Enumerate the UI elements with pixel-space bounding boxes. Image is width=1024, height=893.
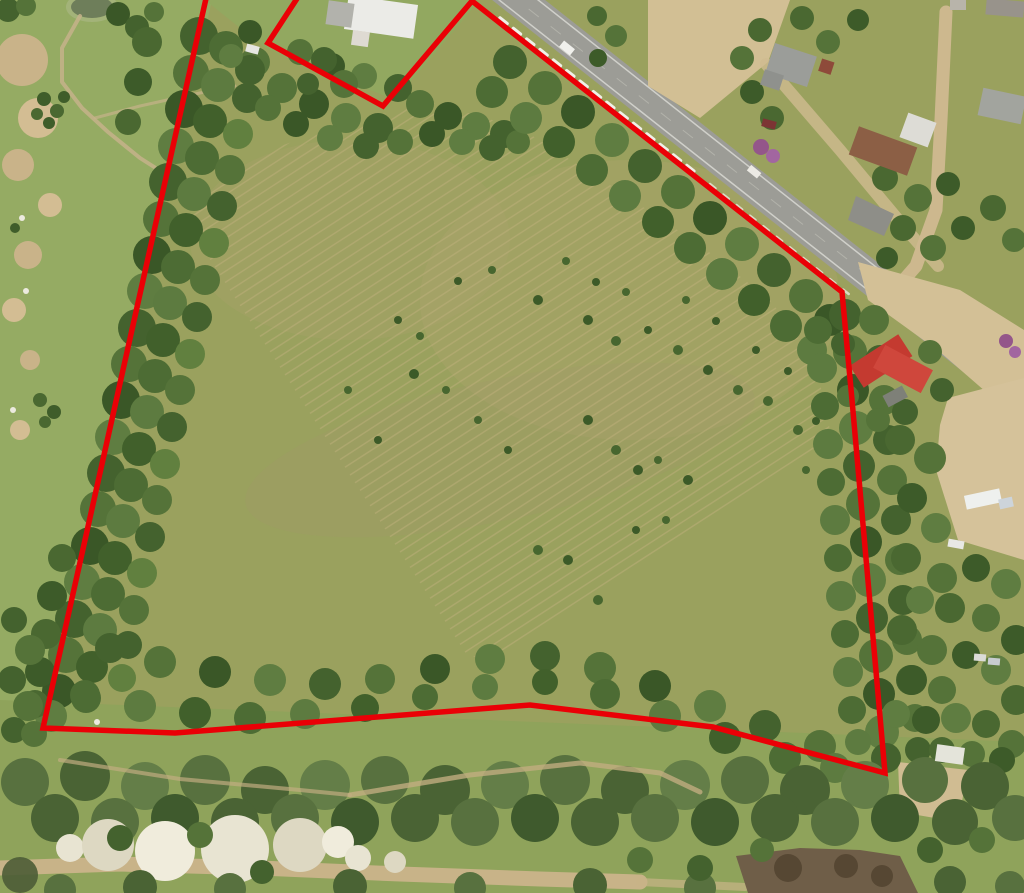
tree-blob xyxy=(633,465,643,475)
tree-blob xyxy=(37,92,51,106)
tree-blob xyxy=(94,719,100,725)
tree-blob xyxy=(753,139,769,155)
house-notch-wing xyxy=(325,0,354,27)
tree-blob xyxy=(576,154,608,186)
tree-blob xyxy=(345,845,371,871)
tree-blob xyxy=(15,635,45,665)
tree-blob xyxy=(182,302,212,332)
tree-blob xyxy=(649,700,681,732)
car-bottom-right-2 xyxy=(988,657,1001,665)
tree-blob xyxy=(161,250,195,284)
tree-blob xyxy=(119,595,149,625)
tree-blob xyxy=(817,468,845,496)
tree-blob xyxy=(479,135,505,161)
tree-blob xyxy=(56,834,84,862)
tree-blob xyxy=(906,586,934,614)
tree-blob xyxy=(449,129,475,155)
tree-blob xyxy=(859,305,889,335)
tree-blob xyxy=(721,756,769,804)
tree-blob xyxy=(106,504,140,538)
aerial-property-map xyxy=(0,0,1024,893)
tree-blob xyxy=(661,175,695,209)
tree-blob xyxy=(135,522,165,552)
tree-blob xyxy=(543,126,575,158)
tree-blob xyxy=(207,191,237,221)
tree-blob xyxy=(215,155,245,185)
tree-blob xyxy=(406,90,434,118)
tree-blob xyxy=(589,49,607,67)
tree-blob xyxy=(644,326,652,334)
tree-blob xyxy=(811,392,839,420)
tree-blob xyxy=(562,257,570,265)
tree-blob xyxy=(98,541,132,575)
tree-blob xyxy=(622,288,630,296)
tree-blob xyxy=(882,700,910,728)
tree-blob xyxy=(361,756,409,804)
tree-blob xyxy=(199,656,231,688)
tree-blob xyxy=(980,195,1006,221)
tree-blob xyxy=(920,235,946,261)
tree-blob xyxy=(917,837,943,863)
tree-blob xyxy=(144,2,164,22)
tree-blob xyxy=(475,644,505,674)
tree-blob xyxy=(912,706,940,734)
tree-blob xyxy=(914,442,946,474)
tree-blob xyxy=(631,794,679,842)
tree-blob xyxy=(150,449,180,479)
tree-blob xyxy=(177,177,211,211)
tree-blob xyxy=(813,429,843,459)
tree-blob xyxy=(1,607,27,633)
tree-blob xyxy=(750,838,774,862)
tree-blob xyxy=(10,407,16,413)
tree-blob xyxy=(23,288,29,294)
tree-blob xyxy=(43,117,55,129)
tree-blob xyxy=(391,794,439,842)
tree-blob xyxy=(187,822,213,848)
tree-blob xyxy=(763,396,773,406)
tree-blob xyxy=(802,466,810,474)
tree-blob xyxy=(999,334,1013,348)
tree-blob xyxy=(193,104,227,138)
tree-blob xyxy=(33,393,47,407)
tree-blob xyxy=(223,119,253,149)
tree-blob xyxy=(897,665,927,695)
tree-blob xyxy=(142,485,172,515)
tree-blob xyxy=(674,232,706,264)
tree-blob xyxy=(165,375,195,405)
tree-blob xyxy=(532,669,558,695)
tree-blob xyxy=(561,95,595,129)
tree-blob xyxy=(127,558,157,588)
tree-blob xyxy=(921,513,951,543)
tree-blob xyxy=(493,45,527,79)
tree-blob xyxy=(820,505,850,535)
tree-blob xyxy=(748,18,772,42)
tree-blob xyxy=(683,475,693,485)
tree-blob xyxy=(628,149,662,183)
tree-blob xyxy=(930,378,954,402)
tree-blob xyxy=(790,6,814,30)
tree-blob xyxy=(47,405,61,419)
tree-blob xyxy=(50,104,64,118)
tree-blob xyxy=(451,798,499,846)
tree-blob xyxy=(654,456,662,464)
tree-blob xyxy=(991,569,1021,599)
tree-blob xyxy=(488,266,496,274)
tree-blob xyxy=(563,555,573,565)
tree-blob xyxy=(1009,346,1021,358)
tree-blob xyxy=(115,109,141,135)
tree-blob xyxy=(941,703,971,733)
tree-blob xyxy=(789,279,823,313)
tree-blob xyxy=(793,425,803,435)
tree-blob xyxy=(185,141,219,175)
tree-blob xyxy=(951,216,975,240)
tree-blob xyxy=(153,286,187,320)
tree-blob xyxy=(972,710,1000,738)
tree-blob xyxy=(39,416,51,428)
tree-blob xyxy=(703,365,713,375)
tree-blob xyxy=(918,340,942,364)
tree-blob xyxy=(254,664,286,696)
tree-blob xyxy=(725,227,759,261)
tree-blob xyxy=(146,323,180,357)
tree-blob xyxy=(409,369,419,379)
tree-blob xyxy=(169,213,203,247)
tree-blob xyxy=(962,554,990,582)
tree-blob xyxy=(897,483,927,513)
tree-blob xyxy=(583,415,593,425)
tree-blob xyxy=(757,253,791,287)
tree-blob xyxy=(48,544,76,572)
tree-blob xyxy=(58,91,70,103)
tree-blob xyxy=(752,346,760,354)
tree-blob xyxy=(890,215,916,241)
tree-blob xyxy=(583,315,593,325)
car-bottom-right-1 xyxy=(974,653,987,661)
tree-blob xyxy=(632,526,640,534)
tree-blob xyxy=(673,345,683,355)
tree-blob xyxy=(824,544,852,572)
tree-blob xyxy=(927,563,957,593)
tree-blob xyxy=(885,425,915,455)
tree-blob xyxy=(833,657,863,687)
aerial-photo-canvas xyxy=(0,0,1024,893)
tree-blob xyxy=(2,298,26,322)
tree-blob xyxy=(528,71,562,105)
tree-blob xyxy=(784,367,792,375)
tree-blob xyxy=(837,385,859,407)
tree-blob xyxy=(847,9,869,31)
tree-blob xyxy=(891,543,921,573)
tree-blob xyxy=(693,201,727,235)
tree-blob xyxy=(13,691,43,721)
tree-blob xyxy=(384,851,406,873)
tree-blob xyxy=(804,316,832,344)
tree-blob xyxy=(190,265,220,295)
tree-blob xyxy=(593,595,603,605)
dark-shadow-bottom-left xyxy=(2,857,38,893)
tree-blob xyxy=(733,385,743,395)
tree-blob xyxy=(374,436,382,444)
tree-blob xyxy=(353,133,379,159)
tree-blob xyxy=(2,149,34,181)
tree-blob xyxy=(611,445,621,455)
tree-blob xyxy=(201,68,235,102)
tree-blob xyxy=(394,316,402,324)
tree-blob xyxy=(250,860,274,884)
tree-blob xyxy=(533,545,543,555)
tree-blob xyxy=(179,697,211,729)
tree-blob xyxy=(609,180,641,212)
tree-blob xyxy=(770,310,802,342)
tree-blob xyxy=(682,296,690,304)
tree-blob xyxy=(38,193,62,217)
tree-blob xyxy=(124,690,156,722)
tree-blob xyxy=(107,825,133,851)
tree-blob xyxy=(928,676,956,704)
tree-blob xyxy=(595,123,629,157)
tree-blob xyxy=(751,794,799,842)
tree-blob xyxy=(571,798,619,846)
tree-blob xyxy=(19,215,25,221)
tree-blob xyxy=(816,30,840,54)
tree-blob xyxy=(10,223,20,233)
tree-blob xyxy=(871,794,919,842)
tree-blob xyxy=(687,855,713,881)
tree-blob xyxy=(533,295,543,305)
tree-blob xyxy=(412,684,438,710)
tree-blob xyxy=(587,6,607,26)
tree-blob xyxy=(504,446,512,454)
tree-blob xyxy=(845,729,871,755)
tree-blob xyxy=(662,516,670,524)
tree-blob xyxy=(175,339,205,369)
tree-blob xyxy=(20,350,40,370)
tree-blob xyxy=(811,798,859,846)
tree-blob xyxy=(831,332,855,356)
tree-blob xyxy=(474,416,482,424)
tree-blob xyxy=(807,353,837,383)
tree-blob xyxy=(157,412,187,442)
tree-blob xyxy=(871,865,893,887)
tree-blob xyxy=(31,108,43,120)
tree-blob xyxy=(936,172,960,196)
tree-blob xyxy=(774,854,802,882)
tree-blob xyxy=(416,332,424,340)
tree-blob xyxy=(611,336,621,346)
tree-blob xyxy=(238,20,262,44)
tree-blob xyxy=(969,827,995,853)
tree-blob xyxy=(70,680,100,710)
tree-blob xyxy=(365,664,395,694)
tree-blob xyxy=(904,184,932,212)
tree-blob xyxy=(14,241,42,269)
tree-blob xyxy=(419,121,445,147)
tree-blob xyxy=(972,604,1000,632)
tree-blob xyxy=(730,46,754,70)
tree-blob xyxy=(887,615,917,645)
tree-blob xyxy=(876,247,898,269)
tree-blob xyxy=(838,696,866,724)
tree-blob xyxy=(866,408,890,432)
tree-blob xyxy=(442,386,450,394)
tree-blob xyxy=(511,794,559,842)
tree-blob xyxy=(309,668,341,700)
tree-blob xyxy=(273,818,327,872)
tree-blob xyxy=(317,125,343,151)
tree-blob xyxy=(108,664,136,692)
tree-blob xyxy=(60,751,110,801)
tree-blob xyxy=(766,149,780,163)
tree-blob xyxy=(831,620,859,648)
structure-top-right-2 xyxy=(950,0,966,10)
tree-blob xyxy=(255,95,281,121)
tree-blob xyxy=(37,581,67,611)
tree-blob xyxy=(712,317,720,325)
tree-blob xyxy=(472,674,498,700)
tree-blob xyxy=(627,847,653,873)
tree-blob xyxy=(454,277,462,285)
tree-blob xyxy=(584,652,616,684)
tree-blob xyxy=(144,646,176,678)
tree-blob xyxy=(420,654,450,684)
tree-blob xyxy=(694,690,726,722)
tree-blob xyxy=(297,73,319,95)
tree-blob xyxy=(826,581,856,611)
tree-blob xyxy=(917,635,947,665)
tree-blob xyxy=(691,798,739,846)
tree-blob xyxy=(283,111,309,137)
tree-blob xyxy=(10,420,30,440)
tree-blob xyxy=(706,258,738,290)
tree-blob xyxy=(344,386,352,394)
tree-blob xyxy=(738,284,770,316)
tree-blob xyxy=(605,25,627,47)
tree-blob xyxy=(387,129,413,155)
tree-blob xyxy=(132,27,162,57)
tree-blob xyxy=(642,206,674,238)
tree-blob xyxy=(834,854,858,878)
shed-notch xyxy=(351,30,370,47)
tree-blob xyxy=(510,102,542,134)
tree-blob xyxy=(592,278,600,286)
tree-blob xyxy=(590,679,620,709)
tree-blob xyxy=(639,670,671,702)
tree-blob xyxy=(199,228,229,258)
tree-blob xyxy=(124,68,152,96)
tree-blob xyxy=(95,633,125,663)
tree-blob xyxy=(935,593,965,623)
tree-blob xyxy=(902,757,948,803)
tree-blob xyxy=(530,641,560,671)
tree-blob xyxy=(219,44,243,68)
tree-blob xyxy=(476,76,508,108)
